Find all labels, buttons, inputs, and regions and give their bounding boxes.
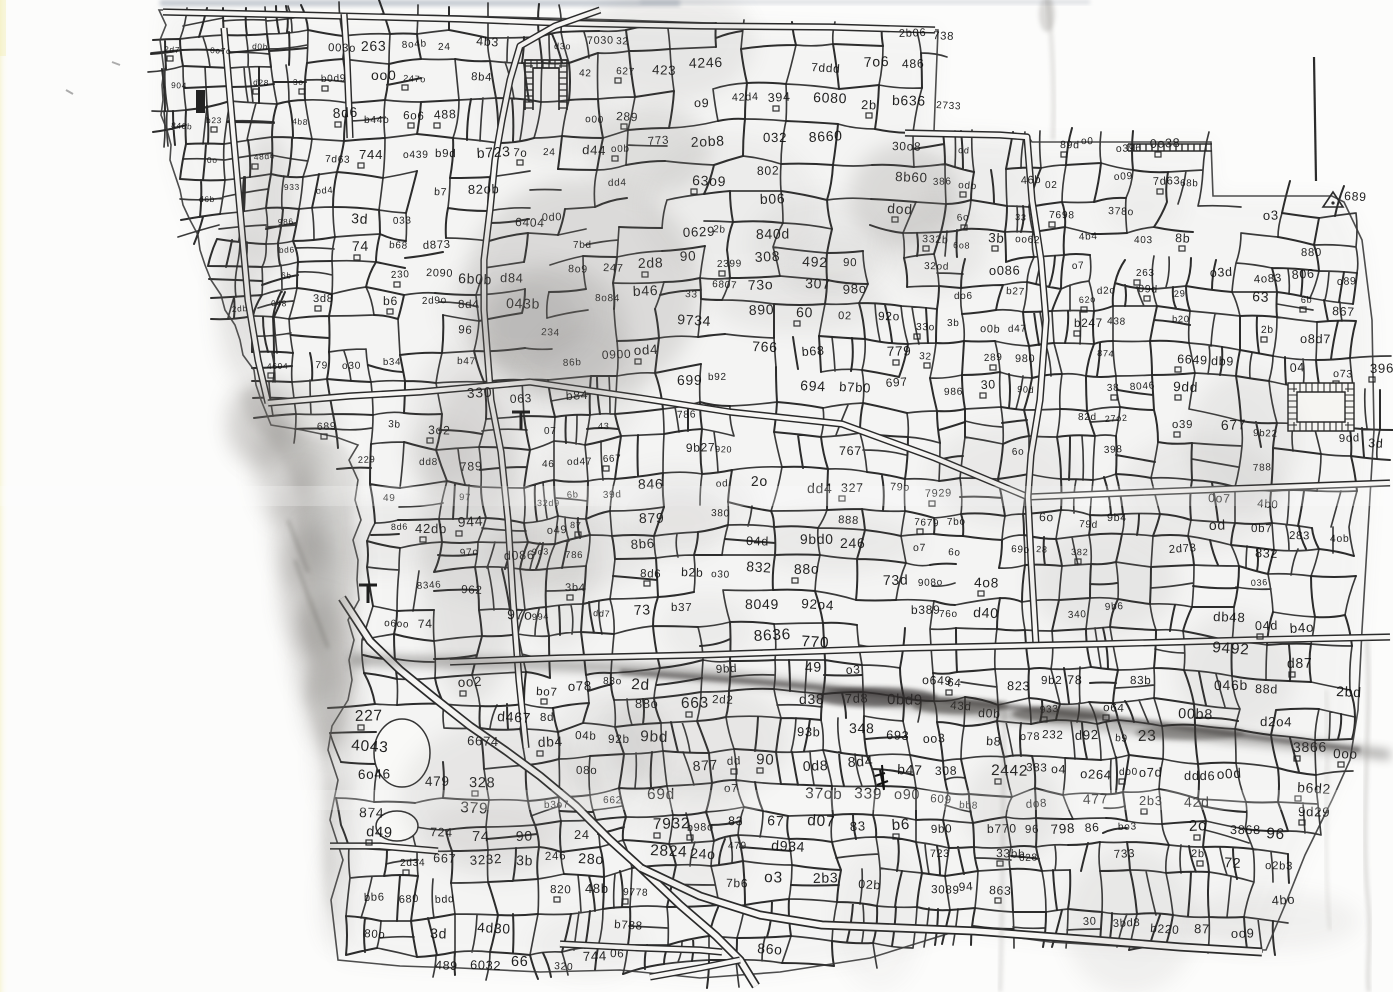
svg-text:6b: 6b [1301, 294, 1313, 305]
svg-text:o30: o30 [711, 569, 730, 581]
svg-text:9dd: 9dd [1173, 379, 1198, 395]
svg-text:2b06: 2b06 [899, 27, 927, 40]
svg-text:o3d: o3d [1210, 265, 1234, 280]
svg-text:3b: 3b [988, 230, 1005, 246]
svg-text:b247: b247 [1074, 317, 1103, 330]
svg-text:263: 263 [1136, 268, 1155, 279]
svg-text:o78: o78 [1020, 731, 1040, 743]
svg-text:7o6: 7o6 [863, 53, 889, 70]
svg-text:d47: d47 [1008, 324, 1027, 335]
svg-text:82d: 82d [1078, 412, 1097, 423]
svg-text:438: 438 [1107, 316, 1126, 328]
svg-text:6o: 6o [948, 547, 961, 559]
svg-text:o396: o396 [1116, 143, 1142, 155]
svg-text:oo0: oo0 [371, 67, 396, 83]
svg-text:048: 048 [271, 298, 287, 308]
svg-text:289: 289 [984, 352, 1003, 364]
svg-text:4o83: 4o83 [1253, 272, 1282, 286]
svg-text:4043: 4043 [351, 737, 389, 756]
svg-text:767: 767 [839, 444, 862, 458]
svg-text:2d7: 2d7 [164, 44, 181, 55]
svg-text:398: 398 [1104, 444, 1123, 456]
svg-text:b92: b92 [708, 372, 727, 383]
svg-text:863: 863 [989, 883, 1012, 898]
svg-text:8o4b: 8o4b [401, 38, 427, 51]
svg-text:80o: 80o [364, 928, 386, 941]
svg-text:73d: 73d [883, 572, 909, 588]
svg-text:488: 488 [434, 107, 457, 122]
svg-text:689: 689 [1344, 189, 1367, 204]
svg-text:67: 67 [767, 812, 785, 829]
svg-text:o3: o3 [1263, 207, 1279, 223]
svg-text:d07: d07 [807, 812, 836, 831]
svg-text:920: 920 [715, 444, 732, 455]
svg-text:394: 394 [767, 90, 791, 105]
svg-text:79: 79 [315, 360, 328, 372]
svg-text:4b4: 4b4 [1079, 231, 1098, 243]
svg-text:8d4: 8d4 [847, 752, 873, 770]
svg-text:d2o: d2o [1097, 285, 1116, 297]
svg-text:b0d9: b0d9 [321, 73, 347, 85]
svg-text:779: 779 [887, 343, 912, 359]
svg-text:2o: 2o [1188, 817, 1207, 835]
svg-text:3d: 3d [351, 210, 369, 227]
svg-text:b636: b636 [892, 92, 926, 109]
svg-text:93b: 93b [797, 724, 821, 739]
svg-text:6b: 6b [281, 270, 292, 280]
svg-text:3089: 3089 [931, 883, 960, 897]
svg-text:49: 49 [805, 659, 822, 675]
svg-text:283: 283 [1289, 530, 1310, 542]
svg-text:b34: b34 [383, 357, 401, 368]
svg-text:4604: 4604 [267, 361, 288, 371]
svg-text:33o: 33o [916, 322, 935, 333]
svg-text:b6: b6 [383, 294, 398, 308]
svg-text:09d: 09d [1138, 283, 1158, 296]
svg-text:bo7: bo7 [536, 685, 558, 699]
svg-text:b2b: b2b [681, 565, 704, 580]
svg-text:0d8: 0d8 [802, 757, 828, 774]
svg-text:8049: 8049 [745, 596, 779, 612]
svg-text:3o: 3o [293, 77, 304, 87]
svg-text:b27: b27 [1006, 286, 1025, 298]
svg-text:820: 820 [550, 883, 572, 896]
svg-text:348: 348 [849, 720, 875, 736]
svg-text:489: 489 [435, 958, 458, 973]
svg-text:880: 880 [1301, 247, 1322, 259]
svg-text:b44o: b44o [364, 115, 389, 126]
svg-text:04: 04 [1289, 360, 1305, 375]
svg-text:d49: d49 [366, 824, 393, 841]
svg-text:806: 806 [1291, 266, 1315, 282]
svg-text:766: 766 [752, 338, 778, 355]
svg-text:0o: 0o [207, 155, 218, 165]
svg-text:b7: b7 [434, 186, 448, 199]
svg-text:738: 738 [933, 30, 955, 43]
svg-text:247o: 247o [403, 73, 426, 85]
svg-text:o8d7: o8d7 [1300, 332, 1331, 346]
svg-text:b68: b68 [801, 343, 825, 359]
svg-text:980: 980 [1015, 353, 1035, 365]
svg-text:2d: 2d [631, 676, 650, 694]
svg-text:667: 667 [603, 453, 622, 465]
svg-text:27o2: 27o2 [1105, 413, 1128, 424]
svg-text:ddd6: ddd6 [1184, 768, 1215, 783]
svg-text:30: 30 [980, 377, 996, 392]
svg-text:b9: b9 [1115, 733, 1128, 745]
svg-text:770: 770 [801, 633, 830, 652]
svg-text:6080: 6080 [813, 89, 848, 106]
svg-text:8b4: 8b4 [471, 71, 492, 84]
svg-text:24: 24 [438, 42, 451, 53]
svg-text:9od: 9od [1339, 432, 1360, 445]
svg-text:3b: 3b [388, 419, 401, 431]
svg-text:003o: 003o [328, 42, 356, 55]
svg-text:8046: 8046 [1129, 380, 1155, 393]
svg-text:b20: b20 [1172, 314, 1190, 324]
svg-text:8636: 8636 [753, 626, 791, 645]
svg-text:9778: 9778 [623, 887, 649, 899]
svg-text:d28: d28 [253, 77, 269, 88]
svg-text:723: 723 [930, 848, 950, 860]
svg-text:63: 63 [1252, 288, 1270, 305]
svg-text:694: 694 [800, 377, 826, 394]
svg-text:908o: 908o [918, 577, 943, 589]
svg-text:66: 66 [511, 954, 528, 970]
svg-text:76o: 76o [939, 609, 958, 620]
svg-text:86o: 86o [757, 940, 783, 958]
svg-text:92o4: 92o4 [801, 596, 835, 613]
svg-text:o6oo: o6oo [384, 618, 410, 631]
svg-text:48b: 48b [585, 881, 609, 896]
svg-text:680: 680 [398, 893, 419, 906]
svg-text:96: 96 [1266, 825, 1286, 843]
svg-text:db9: db9 [1211, 354, 1234, 369]
svg-text:83b: 83b [1130, 674, 1152, 687]
svg-text:b7b0: b7b0 [839, 379, 872, 396]
svg-text:72: 72 [1224, 854, 1242, 871]
svg-text:227: 227 [355, 707, 383, 725]
svg-text:486: 486 [902, 56, 925, 71]
svg-text:2d34: 2d34 [400, 858, 425, 869]
svg-text:82ob: 82ob [468, 181, 500, 197]
svg-text:62o: 62o [1079, 294, 1097, 305]
svg-text:o73: o73 [1333, 368, 1353, 381]
svg-text:4ob: 4ob [1330, 534, 1350, 545]
svg-text:o086: o086 [989, 263, 1021, 278]
svg-text:786: 786 [677, 409, 697, 421]
svg-text:823: 823 [1007, 679, 1030, 693]
svg-text:867: 867 [1332, 304, 1355, 319]
svg-text:874: 874 [1097, 348, 1115, 359]
svg-text:3d: 3d [430, 925, 448, 942]
svg-text:b6: b6 [891, 816, 910, 834]
svg-text:3868: 3868 [1230, 823, 1261, 837]
svg-text:bo3: bo3 [1118, 821, 1137, 833]
svg-text:9b0: 9b0 [931, 822, 953, 836]
svg-text:74: 74 [352, 238, 369, 254]
svg-text:8d: 8d [540, 711, 555, 724]
svg-text:396: 396 [1370, 360, 1393, 376]
svg-text:b68: b68 [389, 240, 408, 252]
svg-text:69o: 69o [1011, 544, 1030, 556]
svg-text:4o8: 4o8 [974, 575, 999, 591]
svg-text:73: 73 [633, 601, 651, 618]
svg-text:d92: d92 [1074, 727, 1099, 743]
svg-text:229: 229 [358, 454, 376, 465]
svg-text:64: 64 [947, 676, 962, 690]
svg-text:6o6: 6o6 [403, 109, 425, 123]
svg-text:86: 86 [1084, 820, 1100, 835]
svg-text:6o46: 6o46 [358, 766, 391, 782]
svg-text:83o: 83o [603, 676, 622, 687]
svg-text:2b3: 2b3 [813, 869, 839, 886]
svg-text:o264: o264 [1080, 766, 1112, 782]
svg-text:d40: d40 [973, 604, 999, 621]
svg-text:b723: b723 [476, 143, 511, 161]
svg-text:90d: 90d [1017, 384, 1035, 395]
svg-text:d873: d873 [423, 239, 451, 252]
svg-text:b47: b47 [897, 761, 923, 778]
svg-text:28o: 28o [578, 851, 605, 868]
svg-text:3d: 3d [1368, 436, 1384, 451]
svg-text:b8: b8 [986, 734, 1002, 749]
svg-text:904: 904 [171, 80, 187, 91]
svg-text:oo62: oo62 [1015, 234, 1041, 246]
svg-text:2bd: 2bd [1336, 683, 1362, 700]
svg-text:3b: 3b [947, 318, 960, 329]
svg-text:o30: o30 [342, 361, 361, 372]
svg-text:94: 94 [958, 879, 973, 894]
svg-text:b9d: b9d [435, 148, 456, 160]
svg-text:o0d: o0d [1216, 766, 1242, 782]
svg-text:9b2: 9b2 [1041, 674, 1062, 687]
svg-text:7698: 7698 [1049, 210, 1075, 221]
svg-text:02: 02 [1045, 180, 1058, 191]
svg-text:832: 832 [746, 558, 773, 576]
svg-text:89d: 89d [1060, 139, 1080, 151]
svg-text:848b: 848b [171, 120, 193, 131]
svg-text:2b: 2b [861, 97, 877, 112]
svg-text:2b: 2b [1191, 848, 1205, 860]
svg-text:o439: o439 [403, 150, 429, 161]
svg-text:do0: do0 [1119, 767, 1138, 778]
svg-text:38: 38 [1107, 382, 1120, 394]
svg-text:od4: od4 [315, 185, 333, 196]
svg-text:o3: o3 [846, 662, 861, 677]
svg-text:o89: o89 [1337, 275, 1357, 288]
svg-text:o4: o4 [1051, 762, 1066, 776]
svg-text:7d63: 7d63 [325, 154, 351, 166]
svg-text:o7: o7 [1072, 260, 1085, 272]
svg-text:32: 32 [919, 351, 932, 363]
svg-text:bdd: bdd [435, 893, 455, 906]
svg-text:2b: 2b [1261, 325, 1274, 336]
svg-text:2733: 2733 [936, 100, 962, 112]
svg-text:832: 832 [1255, 546, 1279, 561]
svg-text:b389: b389 [911, 603, 941, 617]
svg-text:d0b: d0b [252, 41, 268, 52]
svg-text:4b3: 4b3 [476, 34, 500, 50]
svg-text:232: 232 [1042, 728, 1064, 742]
svg-text:oo3: oo3 [923, 731, 946, 746]
svg-text:693: 693 [886, 728, 910, 743]
svg-text:4b8: 4b8 [292, 116, 309, 127]
svg-text:7679: 7679 [914, 517, 940, 529]
svg-text:036: 036 [1251, 577, 1269, 588]
svg-text:b23: b23 [206, 115, 222, 125]
svg-text:78: 78 [1067, 673, 1083, 687]
svg-text:o2b3: o2b3 [1265, 860, 1293, 873]
svg-text:o3: o3 [764, 869, 783, 887]
svg-text:o7d: o7d [1139, 764, 1163, 780]
svg-text:do6: do6 [954, 291, 973, 302]
svg-text:42d4: 42d4 [732, 91, 759, 104]
svg-text:6032: 6032 [470, 958, 501, 973]
svg-text:8d6: 8d6 [332, 105, 358, 121]
svg-text:b4o: b4o [1289, 619, 1314, 636]
svg-text:3d8: 3d8 [313, 293, 334, 305]
svg-text:bb6: bb6 [364, 891, 385, 904]
svg-text:263: 263 [361, 38, 387, 54]
svg-text:0o7o: 0o7o [210, 45, 232, 56]
svg-text:4d30: 4d30 [477, 920, 511, 937]
svg-text:6649: 6649 [1177, 352, 1208, 368]
svg-text:2090: 2090 [426, 267, 453, 280]
svg-text:o0: o0 [1081, 136, 1094, 147]
svg-text:o0b: o0b [980, 323, 1001, 336]
svg-text:230: 230 [391, 269, 410, 281]
svg-text:986: 986 [944, 387, 963, 398]
svg-text:8b: 8b [1175, 231, 1191, 246]
svg-text:7ddd: 7ddd [811, 60, 841, 76]
svg-text:d6b: d6b [199, 194, 215, 204]
svg-text:697: 697 [885, 374, 908, 389]
svg-text:8660: 8660 [808, 127, 843, 145]
svg-text:033: 033 [393, 215, 412, 227]
svg-text:68b: 68b [1180, 178, 1199, 189]
svg-text:9b27: 9b27 [686, 440, 716, 455]
svg-text:699: 699 [677, 372, 703, 388]
svg-text:308: 308 [935, 764, 958, 778]
svg-text:d934: d934 [771, 837, 806, 855]
svg-text:29: 29 [1174, 288, 1186, 299]
svg-text:744: 744 [359, 147, 383, 162]
svg-text:83: 83 [849, 818, 866, 834]
